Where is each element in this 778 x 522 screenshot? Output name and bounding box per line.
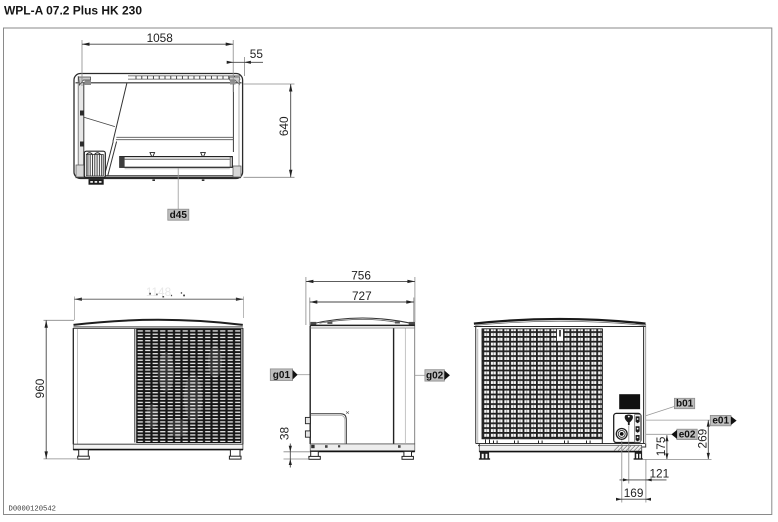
svg-text:1058: 1058 — [147, 31, 174, 45]
svg-text:g01: g01 — [273, 370, 291, 381]
svg-text:b01: b01 — [676, 398, 694, 409]
svg-text:e01: e01 — [712, 416, 729, 427]
svg-text:g02: g02 — [426, 371, 444, 382]
svg-text:727: 727 — [352, 289, 372, 303]
svg-text:55: 55 — [250, 47, 264, 61]
svg-text:269: 269 — [696, 429, 710, 449]
svg-text:121: 121 — [650, 466, 670, 480]
svg-text:640: 640 — [277, 116, 291, 136]
svg-text:38: 38 — [277, 427, 291, 441]
svg-text:WPL-A 07.2 Plus HK 230: WPL-A 07.2 Plus HK 230 — [4, 4, 142, 18]
svg-text:175: 175 — [654, 436, 668, 456]
svg-text:e02: e02 — [679, 429, 696, 440]
svg-text:169: 169 — [624, 486, 644, 500]
svg-text:756: 756 — [351, 269, 371, 283]
svg-text:960: 960 — [33, 378, 47, 398]
svg-text:d45: d45 — [170, 210, 188, 221]
svg-text:1148: 1148 — [146, 285, 172, 299]
svg-text:D0000120542: D0000120542 — [9, 506, 56, 514]
